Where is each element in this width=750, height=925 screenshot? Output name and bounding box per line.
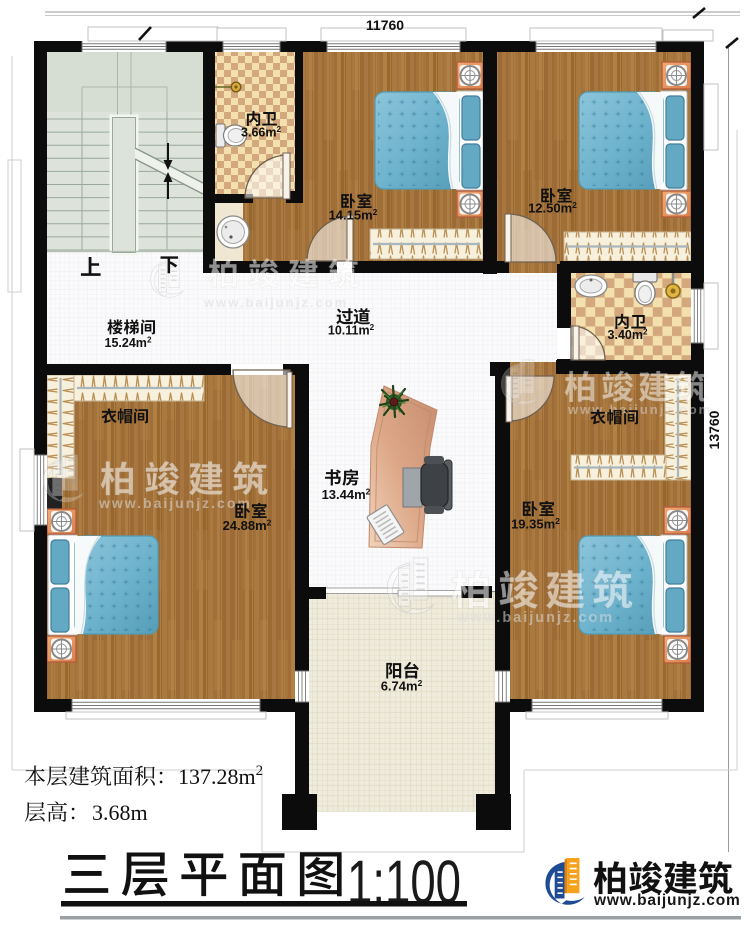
svg-text:3.68m: 3.68m	[92, 800, 148, 825]
svg-text:www.baijunjz.com: www.baijunjz.com	[98, 495, 252, 511]
svg-text:14.15m2: 14.15m2	[329, 207, 378, 223]
svg-text:www.baijunjz.com: www.baijunjz.com	[456, 610, 614, 626]
svg-text:www.baijunjz.com: www.baijunjz.com	[593, 892, 741, 909]
svg-text:3.66m2: 3.66m2	[241, 125, 281, 139]
svg-text:3.40m2: 3.40m2	[608, 328, 648, 342]
svg-text:6.74m2: 6.74m2	[381, 678, 423, 694]
svg-text:13.44m2: 13.44m2	[322, 487, 371, 503]
svg-text:19.35m2: 19.35m2	[511, 516, 560, 532]
svg-text:www.baijunjz.com: www.baijunjz.com	[567, 402, 712, 417]
svg-text:24.88m2: 24.88m2	[223, 518, 272, 534]
svg-text:137.28m2: 137.28m2	[178, 763, 263, 789]
svg-text:12.50m2: 12.50m2	[528, 200, 577, 216]
svg-text:www.baijunjz.com: www.baijunjz.com	[203, 295, 348, 310]
svg-text:10.11m2: 10.11m2	[328, 323, 375, 337]
svg-text:11760: 11760	[366, 17, 404, 33]
svg-text:15.24m2: 15.24m2	[105, 336, 152, 350]
